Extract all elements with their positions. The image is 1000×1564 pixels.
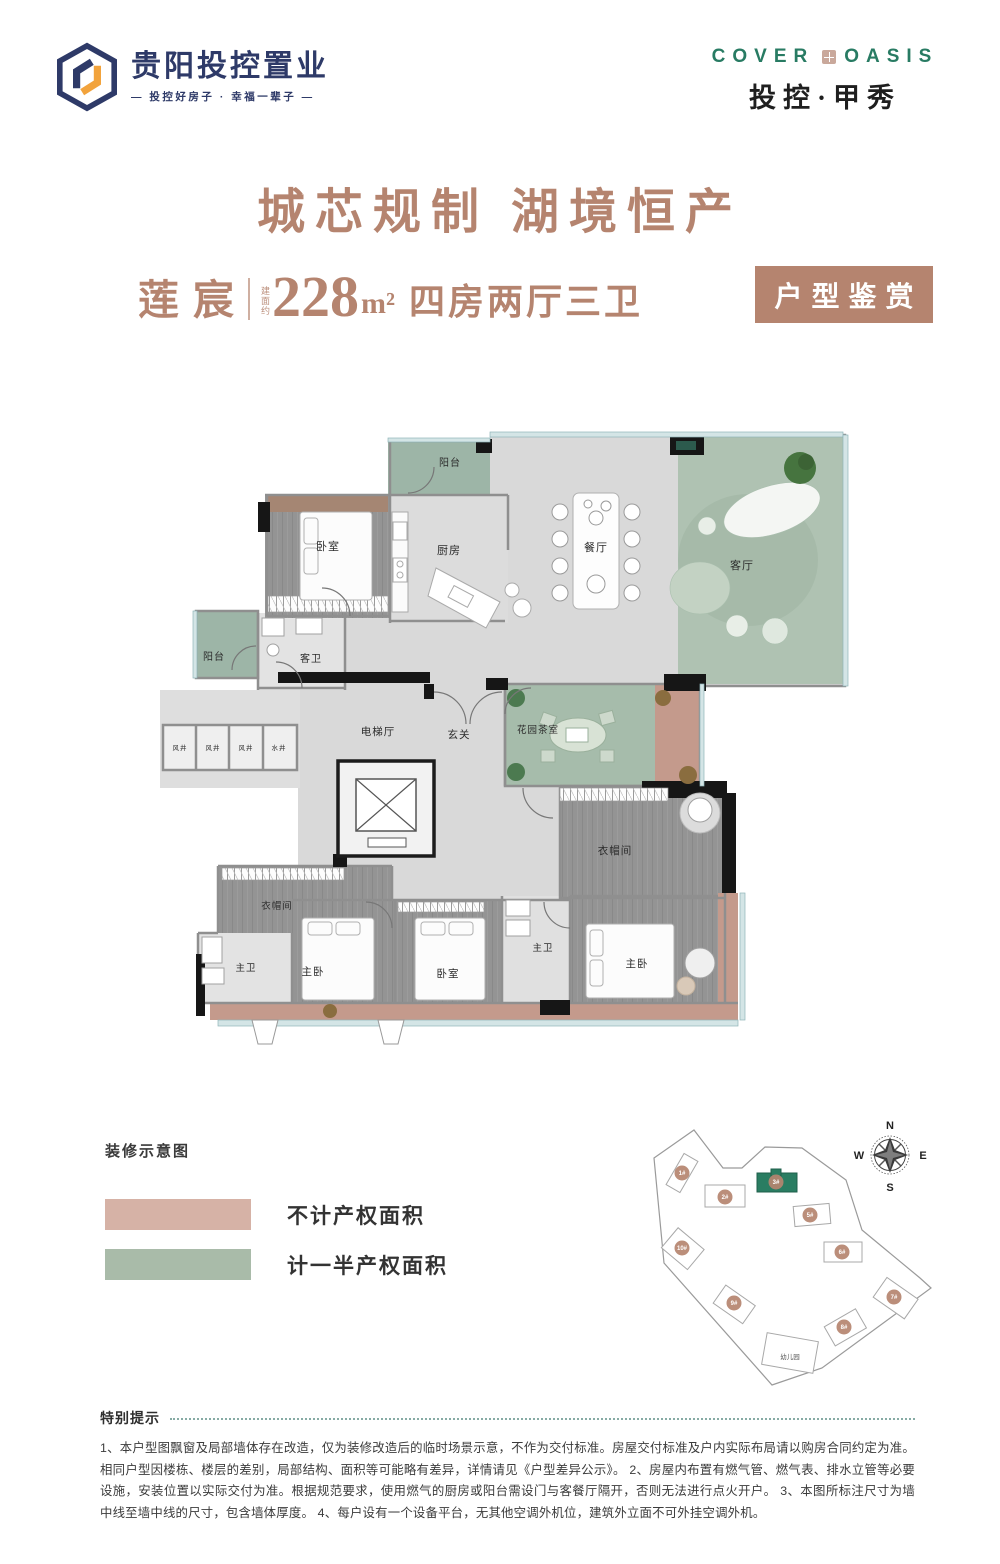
building-id: 5#	[807, 1213, 814, 1219]
compass-e: E	[919, 1150, 926, 1162]
room-label: 客厅	[730, 558, 754, 572]
project-logo-cn: 投控·甲秀	[700, 76, 950, 115]
area-prefix: 建面约	[260, 286, 270, 316]
room-label: 主卧	[626, 957, 649, 970]
unit-info-bar: 莲宸 建面约 228 m² 四房两厅三卫 户型鉴赏	[138, 262, 933, 326]
seal-stamp-icon	[822, 50, 836, 64]
room-label: 阳台	[439, 456, 461, 469]
room-label: 卧室	[437, 967, 460, 980]
project-en-left: COVER	[712, 46, 815, 68]
legend-item: 不计产权面积	[105, 1199, 448, 1230]
brand-logo: 贵阳投控置业 — 投控好房子 · 幸福一辈子 —	[55, 42, 329, 112]
room-label: 卧室	[316, 539, 340, 553]
project-en-right: OASIS	[844, 46, 938, 68]
room-label: 主卫	[532, 942, 553, 954]
room-label: 主卫	[235, 962, 256, 974]
legend-items: 不计产权面积计一半产权面积	[105, 1199, 448, 1280]
divider	[248, 278, 250, 320]
building-id: 9#	[731, 1301, 738, 1307]
room-label: 风井	[206, 743, 221, 752]
hexagon-logo-icon	[55, 42, 119, 112]
room-label: 花园茶室	[517, 724, 559, 736]
room-label: 客卫	[300, 652, 322, 665]
legend-item: 计一半产权面积	[105, 1249, 448, 1280]
building-id: 7#	[891, 1295, 898, 1301]
notice-heading: 特别提示	[100, 1408, 160, 1428]
kindergarten-label: 幼儿园	[780, 1352, 800, 1361]
elevator	[338, 761, 434, 856]
layout-description: 四房两厅三卫	[409, 282, 643, 322]
building-id: 8#	[841, 1325, 848, 1331]
legend-heading: 装修示意图	[105, 1140, 448, 1161]
room-label: 风井	[239, 743, 254, 752]
room-label: 阳台	[203, 650, 225, 663]
notice-body: 1、本户型图飘窗及局部墙体存在改造，仅为装修改造后的临时场景示意，不作为交付标准…	[100, 1438, 915, 1524]
compass-s: S	[886, 1182, 893, 1194]
dotted-divider	[170, 1418, 915, 1420]
site-map: 1#2#3#5#6#10#9#8#7#幼儿园 N S W E	[652, 1115, 977, 1415]
room-label: 水井	[272, 743, 287, 752]
page-title: 城芯规制 湖境恒产	[0, 172, 1000, 242]
building-id: 10#	[677, 1246, 688, 1252]
notice-section: 特别提示 1、本户型图飘窗及局部墙体存在改造，仅为装修改造后的临时场景示意，不作…	[100, 1408, 915, 1524]
building-id: 3#	[773, 1180, 780, 1186]
brand-name: 贵阳投控置业	[131, 50, 329, 84]
room-label: 主卧	[302, 965, 325, 978]
room-label: 衣帽间	[261, 900, 293, 912]
brand-tagline: — 投控好房子 · 幸福一辈子 —	[131, 89, 329, 104]
room-label: 电梯厅	[361, 725, 396, 738]
unit-summary: 莲宸 建面约 228 m² 四房两厅三卫	[138, 272, 643, 322]
room-label: 厨房	[437, 544, 461, 557]
room-label: 玄关	[448, 728, 471, 741]
project-logo-en: COVER OASIS	[700, 46, 950, 68]
legend-label: 不计产权面积	[287, 1200, 425, 1230]
appreciation-badge: 户型鉴赏	[755, 266, 933, 323]
compass-icon: N S W E	[854, 1120, 927, 1194]
building-id: 6#	[839, 1250, 846, 1256]
legend: 装修示意图 不计产权面积计一半产权面积	[105, 1140, 448, 1299]
area-unit: m²	[361, 287, 395, 321]
compass-w: W	[854, 1150, 865, 1162]
poster-page: 贵阳投控置业 — 投控好房子 · 幸福一辈子 — COVER OASIS 投控·…	[0, 0, 1000, 1564]
building-id: 1#	[679, 1171, 686, 1177]
room-label: 衣帽间	[598, 844, 633, 857]
legend-label: 计一半产权面积	[287, 1250, 448, 1280]
area-value: 228	[272, 272, 359, 322]
building-id: 2#	[722, 1195, 729, 1201]
room-label: 餐厅	[584, 540, 608, 554]
project-logo: COVER OASIS 投控·甲秀	[700, 46, 950, 115]
legend-swatch	[105, 1199, 251, 1230]
legend-swatch	[105, 1249, 251, 1280]
floorplan-drawing: 阳台卧室厨房餐厅客厅阳台客卫风井风井风井水井电梯厅玄关花园茶室衣帽间衣帽间主卫主…	[160, 423, 860, 1063]
room-label: 风井	[173, 743, 188, 752]
compass-n: N	[886, 1120, 894, 1132]
unit-name: 莲宸	[138, 278, 248, 322]
